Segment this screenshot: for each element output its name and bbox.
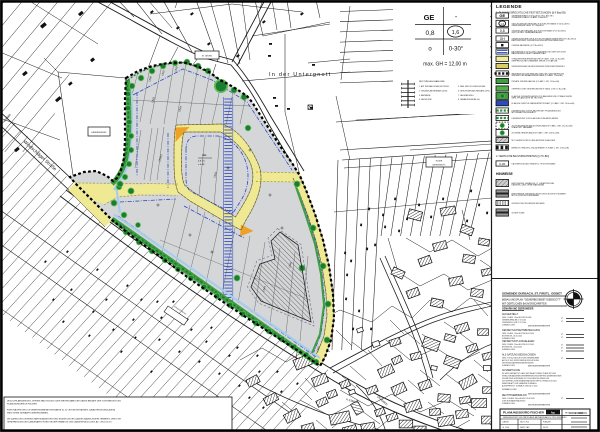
svg-text:PLANUNGSBUEROS FISCHER.: PLANUNGSBUEROS FISCHER. — [7, 403, 38, 406]
svg-text:DARSTELLUNG OHNE MASSSTAB: DARSTELLUNG OHNE MASSSTAB — [512, 184, 545, 187]
svg-text:DURBACH, DEN: DURBACH, DEN — [502, 364, 516, 367]
svg-text:SCHNITTLINIE: SCHNITTLINIE — [512, 212, 526, 214]
svg-text:GEMARKUNG EBERSWEIER: GEMARKUNG EBERSWEIER — [502, 307, 534, 310]
svg-text:ALS SATZUNG BESCHLOSSEN: ALS SATZUNG BESCHLOSSEN — [502, 354, 536, 357]
svg-text:5. ZAHL DER VOLLGESCHOSSE: 5. ZAHL DER VOLLGESCHOSSE — [458, 85, 486, 88]
svg-text:GE: GE — [202, 153, 206, 157]
svg-text:GEM. PFLANZLISTE IM TEXTTEIL: GEM. PFLANZLISTE IM TEXTTEIL — [512, 97, 544, 100]
svg-text:PLAN-NR.: PLAN-NR. — [543, 420, 551, 423]
svg-text:GH: GH — [500, 37, 506, 41]
svg-text:DURBACH, DEN: DURBACH, DEN — [502, 337, 516, 340]
svg-text:HINWEISE: HINWEISE — [496, 172, 514, 176]
svg-text:DACHNEIGUNG ALS MINDEST- / HOE: DACHNEIGUNG ALS MINDEST- / HOECHSTMASS — [512, 162, 557, 165]
svg-text:HERRENGRUND: HERRENGRUND — [92, 132, 108, 134]
svg-text:1,6: 1,6 — [452, 30, 460, 36]
svg-text:GE: GE — [499, 13, 505, 18]
svg-text:PROJ.: PROJ. — [565, 413, 570, 415]
svg-text:BEZUGSPUNKT: ERDGESCHOSS-FERTI: BEZUGSPUNKT: ERDGESCHOSS-FERTIGFUSSBODEN — [512, 40, 564, 42]
svg-text:BAUGRENZEN GEM. PLANEINTRAG: BAUGRENZEN GEM. PLANEINTRAG — [512, 52, 547, 55]
svg-text:0,8: 0,8 — [425, 30, 434, 37]
svg-text:BEREICH OHNE EIN- UND AUSFAHRT: BEREICH OHNE EIN- UND AUSFAHRT (§ 9 ABS.… — [512, 146, 570, 149]
svg-text:DER BUERGERMEISTER: DER BUERGERMEISTER — [528, 405, 551, 407]
svg-text:4. DACHFORM: 4. DACHFORM — [419, 98, 432, 101]
svg-text:GEMEINDE DURBACH, ST. FIRSTL.: GEMEINDE DURBACH, ST. FIRSTL. GEBIET — [502, 292, 562, 296]
svg-text:In der Untergnott: In der Untergnott — [269, 72, 331, 78]
svg-text:ST. GEORG: ST. GEORG — [202, 56, 213, 58]
svg-text:BEBAUUNGSPLAN "GEWERBEGEBIET D: BEBAUUNGSPLAN "GEWERBEGEBIET DIEBSGOTT" — [502, 298, 561, 301]
svg-text:WIRD KEINE GEWAEHR UEBERNOMMEN: WIRD KEINE GEWAEHR UEBERNOMMEN. — [7, 412, 49, 415]
svg-text:MIT FLURSTUECKSNUMMER: MIT FLURSTUECKSNUMMER — [512, 195, 540, 197]
svg-text:DER BUERGERMEISTER: DER BUERGERMEISTER — [528, 326, 551, 328]
svg-text:0,8 1,6: 0,8 1,6 — [198, 161, 205, 163]
svg-text:o 0-30°: o 0-30° — [198, 164, 205, 166]
svg-text:LEGENDE: LEGENDE — [496, 4, 522, 10]
svg-text:GRZ 0,8 INKL. NEBENANLAGEN: GRZ 0,8 INKL. NEBENANLAGEN — [512, 31, 543, 34]
svg-text:1. ART DER BAULICHEN NUTZUNG: 1. ART DER BAULICHEN NUTZUNG — [419, 85, 449, 88]
svg-text:OEFFENTLICHE STRASSEN, WEGE U.: OEFFENTLICHE STRASSEN, WEGE U. PLAETZE — [512, 59, 558, 62]
svg-text:DURBACH, DEN: DURBACH, DEN — [502, 324, 516, 327]
svg-text:M. 1:500: M. 1:500 — [503, 427, 510, 429]
svg-text:AUFGESTELLT: AUFGESTELLT — [502, 313, 519, 316]
svg-text:DURBACH, DEN: DURBACH, DEN — [502, 348, 516, 351]
svg-text:2. OERTLICHE BAUVORSCHRIFTEN (: 2. OERTLICHE BAUVORSCHRIFTEN (§ 74 LBO) — [496, 155, 549, 158]
svg-text:OEFFENTLICHE GRUENFLAECHE (§ 9: OEFFENTLICHE GRUENFLAECHE (§ 9 ABS. 1 NR… — [512, 87, 567, 90]
svg-text:GE: GE — [424, 13, 435, 22]
svg-text:04-121: 04-121 — [543, 427, 548, 429]
svg-text:IN DER: IN DER — [436, 161, 443, 163]
svg-text:VERKEHRSFLAECHE BESONDERER ZWE: VERKEHRSFLAECHE BESONDERER ZWECKBESTIMMU… — [512, 65, 566, 68]
svg-text:NUTZUNGSSCHABLONE: NUTZUNGSSCHABLONE — [419, 80, 445, 83]
svg-text:JEGLICHE AENDERUNG, VERVIELFAE: JEGLICHE AENDERUNG, VERVIELFAELTIGUNG OD… — [7, 400, 121, 403]
svg-text:8. GEBAEUDEHOEHE GH: 8. GEBAEUDEHOEHE GH — [458, 98, 480, 101]
svg-text:0-30°: 0-30° — [449, 47, 464, 53]
svg-text:max. GH = 12,00 m: max. GH = 12,00 m — [423, 62, 467, 68]
svg-text:UMGRENZUNG VON FLAECHEN ZUM AN: UMGRENZUNG VON FLAECHEN ZUM ANPFLANZEN — [512, 117, 559, 120]
svg-text:MIT OERTLICHEN BAUVORSCHRIFTEN: MIT OERTLICHEN BAUVORSCHRIFTEN — [502, 302, 547, 305]
svg-text:FUER NACHRICHTLICH UEBERNOMMEN: FUER NACHRICHTLICH UEBERNOMMENE EINTRAEG… — [7, 409, 115, 412]
svg-text:OFFENE BAUWEISE (§ 22 BauNVO): OFFENE BAUWEISE (§ 22 BauNVO) — [512, 44, 544, 47]
svg-text:OEFFENTLICHKEITSBETEILIGUNG: OEFFENTLICHKEITSBETEILIGUNG — [502, 330, 540, 332]
svg-text:OBERGRENZE GEM. § 17 BauNVO: OBERGRENZE GEM. § 17 BauNVO — [512, 25, 545, 27]
svg-text:AUSGEFERTIGT: DURBACH, DEN 28.: AUSGEFERTIGT: DURBACH, DEN 28.07.2005 — [502, 385, 538, 388]
svg-text:GEPR. CAD: GEPR. CAD — [520, 426, 530, 429]
svg-text:OEFFENTLICH AUSGELEGEN: OEFFENTLICH AUSGELEGEN — [502, 340, 535, 343]
svg-text:2. GRUNDFLAECHENZAHL (GRZ): 2. GRUNDFLAECHENZAHL (GRZ) — [419, 89, 448, 92]
svg-text:PLANUNGSBÜRO FISCHER: PLANUNGSBÜRO FISCHER — [503, 411, 545, 415]
svg-text:3. BAUWEISE: 3. BAUWEISE — [419, 94, 431, 97]
svg-text:fsp: fsp — [551, 410, 555, 414]
svg-text:MIT ERHALTUNGSGEBOT: MIT ERHALTUNGSGEBOT — [512, 111, 537, 114]
svg-text:AUSFERTIGUNG: AUSFERTIGUNG — [502, 369, 520, 372]
svg-text:FLAECHE FUER DIE WASSERWIRTSCH: FLAECHE FUER DIE WASSERWIRTSCHAFT (§ 9 A… — [512, 102, 575, 105]
svg-text:1,6: 1,6 — [500, 22, 504, 26]
svg-text:GRENZE DES BEBAUUNGSPLANS (§ 9: GRENZE DES BEBAUUNGSPLANS (§ 9 ABS. 7 Ba… — [512, 74, 563, 77]
svg-text:DER BUERGERMEISTER: DER BUERGERMEISTER — [528, 394, 551, 396]
svg-text:6. GESCHOSSFLAECHENZAHL (GFZ): 6. GESCHOSSFLAECHENZAHL (GFZ) — [458, 89, 490, 92]
svg-text:ZULAESSIG NACH § 8 ABS. 2 BauN: ZULAESSIG NACH § 8 ABS. 2 BauNVO — [512, 16, 548, 19]
svg-text:7. DACHNEIGUNG: 7. DACHNEIGUNG — [458, 94, 474, 97]
svg-text:GEZ. 6.95.5: GEZ. 6.95.5 — [520, 421, 529, 423]
svg-text:STANDORT VARIABEL: STANDORT VARIABEL — [512, 126, 534, 129]
svg-text:GRUNDSTUECKSGRENZE BESTAND: GRUNDSTUECKSGRENZE BESTAND — [512, 202, 546, 205]
svg-text:MIT GEHRECHTEN ZU BELASTENDE F: MIT GEHRECHTEN ZU BELASTENDE FLAECHEN — [512, 139, 556, 142]
svg-text:ZU ERHALTENDER BAUM (§ 9 ABS.: ZU ERHALTENDER BAUM (§ 9 ABS. 1 NR. 25b … — [512, 132, 560, 135]
svg-text:GENEHMIGUNG DES LANDESAMTS FUE: GENEHMIGUNG DES LANDESAMTS FUER GEOINFOR… — [7, 421, 112, 424]
svg-text:0,8: 0,8 — [500, 29, 505, 33]
svg-text:UNTERGNOTT: UNTERGNOTT — [432, 165, 446, 167]
svg-text:DIE DATEN DES LIEGENSCHAFTSKAT: DIE DATEN DES LIEGENSCHAFTSKATASTERS SIN… — [7, 418, 122, 421]
svg-text:DURBACH, DEN: DURBACH, DEN — [502, 402, 516, 405]
svg-text:DATUM: DATUM — [503, 420, 509, 423]
svg-text:RECHTSVERBINDLICH: RECHTSVERBINDLICH — [502, 395, 527, 397]
svg-text:DURBACH, DEN: DURBACH, DEN — [502, 388, 517, 391]
svg-text:DER BUERGERMEISTER: DER BUERGERMEISTER — [528, 366, 551, 368]
svg-text:PRIVATE GRUENFLAECHE (§ 9 ABS.: PRIVATE GRUENFLAECHE (§ 9 ABS. 1 NR. 15 … — [512, 80, 560, 83]
svg-text:0-30: 0-30 — [499, 162, 505, 166]
